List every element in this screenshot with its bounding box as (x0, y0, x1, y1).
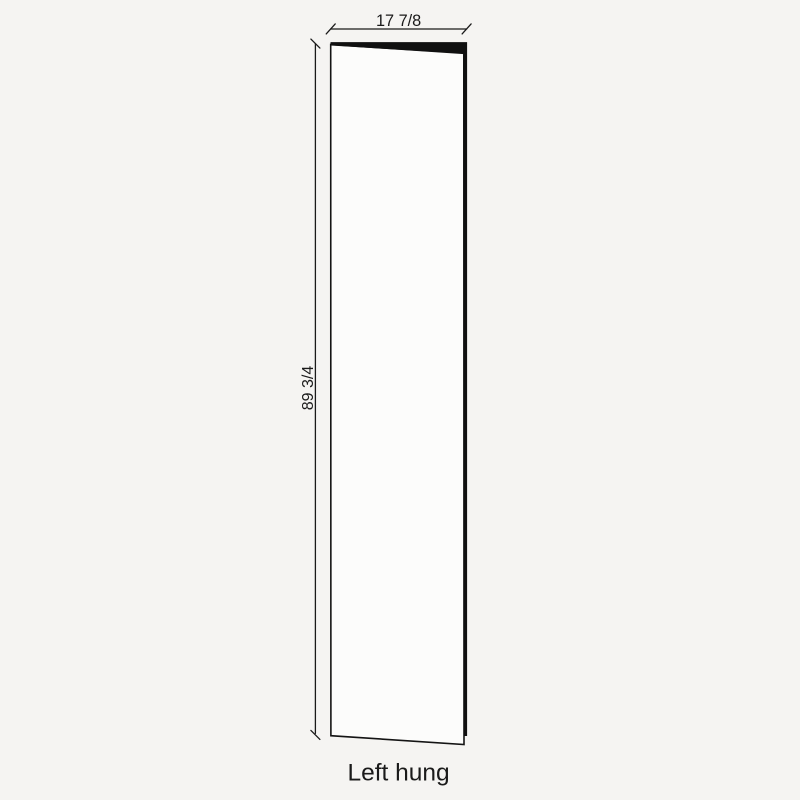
svg-text:17 7/8: 17 7/8 (376, 12, 421, 30)
svg-text:89 3/4: 89 3/4 (300, 366, 317, 411)
svg-text:Left hung: Left hung (348, 760, 450, 787)
